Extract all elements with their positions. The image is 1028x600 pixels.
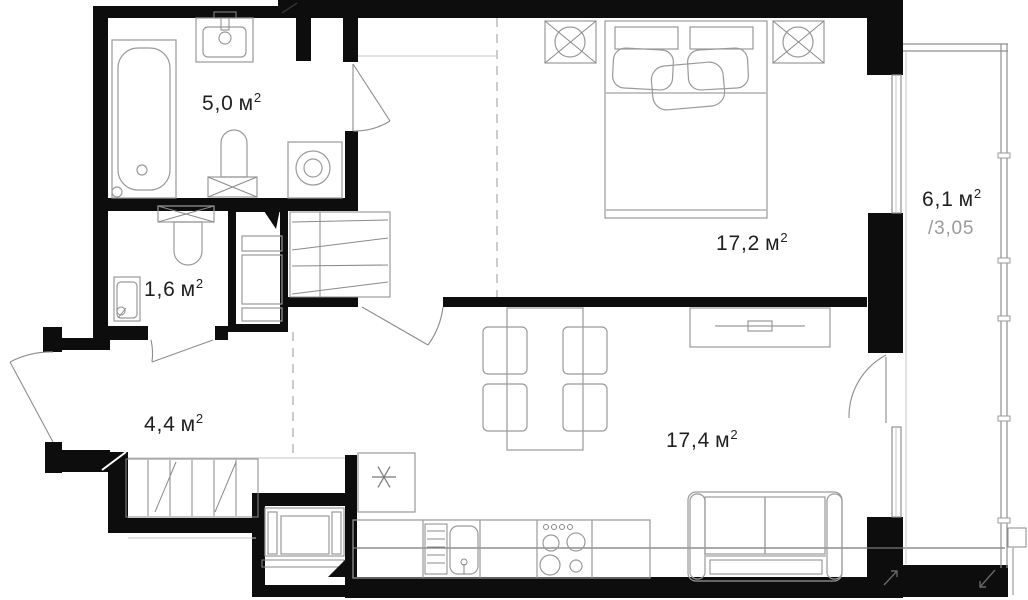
facade-window-bay xyxy=(262,508,348,577)
label-living-kitchen: 17,4м2 xyxy=(666,427,738,452)
nightstand-left xyxy=(545,21,596,63)
label-bathroom: 5,0м2 xyxy=(202,90,262,115)
bathtub xyxy=(112,40,176,198)
zone-lines xyxy=(125,18,497,458)
entrance-door xyxy=(10,352,53,442)
dining-table-and-chairs xyxy=(483,308,607,450)
bedroom-window xyxy=(892,75,901,213)
vent-shaft xyxy=(228,204,288,332)
bathroom-sink xyxy=(196,12,253,62)
floor-plan-svg: 5,0м2 1,6м2 4,4м2 17,2м2 17,4м2 6,1м2 /3… xyxy=(0,0,1028,600)
wc-door xyxy=(151,340,213,362)
nightstand-right xyxy=(773,21,824,63)
living-room-door xyxy=(362,307,443,345)
bathroom-toilet xyxy=(208,130,257,197)
bed xyxy=(605,21,767,218)
wc-sink xyxy=(114,277,140,321)
balcony-glazing xyxy=(884,44,1026,595)
label-bedroom: 17,2м2 xyxy=(716,230,788,255)
label-balcony-coefficient: /3,05 xyxy=(928,218,974,239)
kitchen-counter xyxy=(353,520,650,578)
label-balcony: 6,1м2 xyxy=(922,186,982,211)
wc-toilet xyxy=(158,206,214,265)
floor-plan: 5,0м2 1,6м2 4,4м2 17,2м2 17,4м2 6,1м2 /3… xyxy=(0,0,1028,600)
bathroom-door xyxy=(353,64,390,131)
sofa xyxy=(688,492,842,581)
fridge xyxy=(358,453,415,512)
corridor-wardrobe xyxy=(290,212,390,297)
label-hallway: 4,4м2 xyxy=(144,411,204,436)
balcony-door xyxy=(849,355,886,423)
label-wc: 1,6м2 xyxy=(144,276,204,301)
washing-machine xyxy=(288,142,342,198)
stove xyxy=(540,525,585,576)
living-window xyxy=(892,427,901,517)
tv-stand xyxy=(690,308,830,347)
kitchen-sink xyxy=(425,524,478,574)
